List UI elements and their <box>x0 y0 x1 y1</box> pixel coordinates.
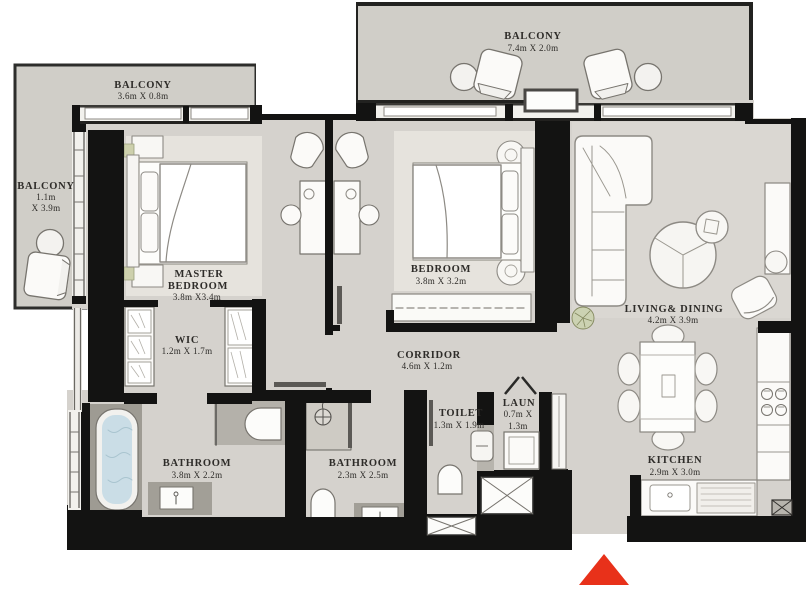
svg-text:4.2m X 3.9m: 4.2m X 3.9m <box>648 315 699 325</box>
svg-text:TOILET: TOILET <box>439 408 483 419</box>
svg-text:3.8m X 3.2m: 3.8m X 3.2m <box>416 276 467 286</box>
svg-text:2.3m X 2.5m: 2.3m X 2.5m <box>338 470 389 480</box>
svg-text:KITCHEN: KITCHEN <box>648 455 703 466</box>
svg-text:X 3.9m: X 3.9m <box>32 203 61 213</box>
svg-text:4.6m X 1.2m: 4.6m X 1.2m <box>402 361 453 371</box>
svg-text:1.3m X 1.9m: 1.3m X 1.9m <box>434 420 485 430</box>
svg-text:0.7m X: 0.7m X <box>504 409 533 419</box>
svg-text:3.6m X 0.8m: 3.6m X 0.8m <box>118 91 169 101</box>
svg-text:3.8m X 2.2m: 3.8m X 2.2m <box>172 470 223 480</box>
svg-text:1.3m: 1.3m <box>508 421 527 431</box>
svg-text:1.1m: 1.1m <box>36 192 55 202</box>
svg-text:2.9m X 3.0m: 2.9m X 3.0m <box>650 467 701 477</box>
svg-text:BEDROOM: BEDROOM <box>168 281 228 292</box>
svg-text:WIC: WIC <box>175 335 199 346</box>
svg-text:MASTER: MASTER <box>174 269 223 280</box>
svg-text:BATHROOM: BATHROOM <box>329 458 397 469</box>
svg-text:BATHROOM: BATHROOM <box>163 458 231 469</box>
svg-text:CORRIDOR: CORRIDOR <box>397 350 461 361</box>
svg-text:BALCONY: BALCONY <box>17 181 74 192</box>
svg-text:1.2m X 1.7m: 1.2m X 1.7m <box>162 346 213 356</box>
svg-text:3.8m X3.4m: 3.8m X3.4m <box>173 292 221 302</box>
svg-text:7.4m X 2.0m: 7.4m X 2.0m <box>508 43 559 53</box>
svg-text:BALCONY: BALCONY <box>504 31 561 42</box>
svg-text:BEDROOM: BEDROOM <box>411 264 471 275</box>
svg-text:BALCONY: BALCONY <box>114 80 171 91</box>
svg-text:LAUN: LAUN <box>503 398 536 409</box>
svg-text:LIVING& DINING: LIVING& DINING <box>625 304 724 315</box>
